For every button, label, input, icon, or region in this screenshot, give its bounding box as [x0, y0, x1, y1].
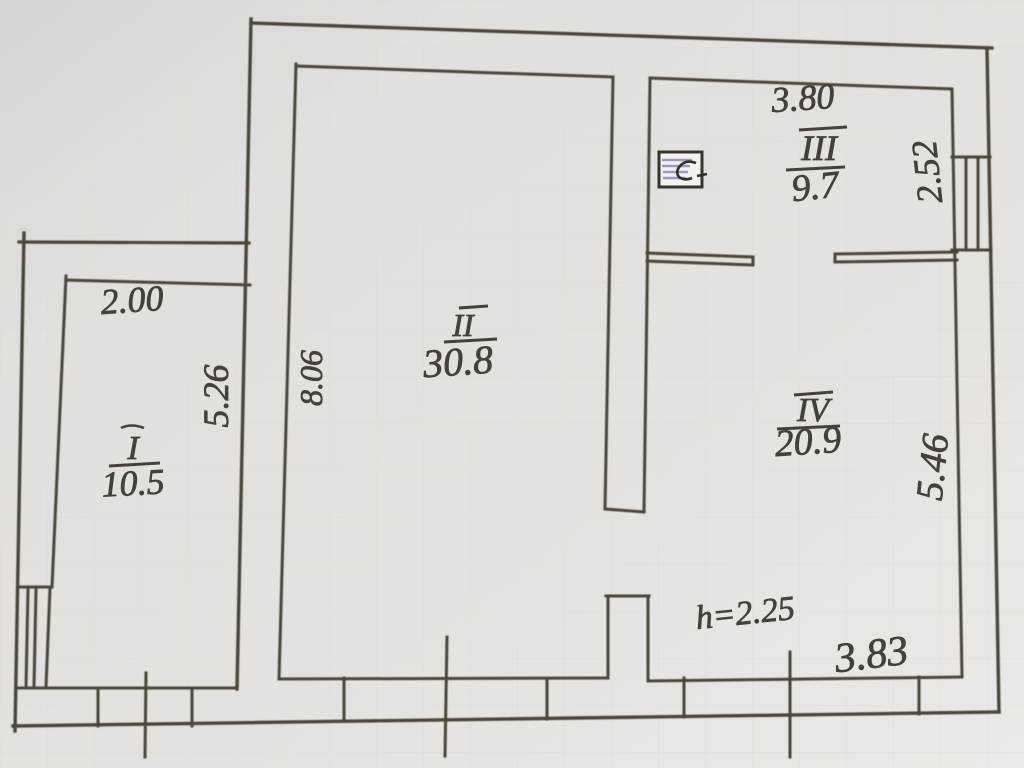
svg-text:III: III: [800, 128, 839, 168]
svg-text:10.5: 10.5: [100, 461, 165, 504]
svg-text:5.26: 5.26: [196, 365, 236, 428]
svg-text:3.80: 3.80: [769, 76, 836, 120]
svg-text:30.8: 30.8: [420, 337, 494, 387]
svg-text:9.7: 9.7: [789, 163, 843, 210]
svg-text:2.00: 2.00: [99, 278, 165, 322]
svg-text:I: I: [126, 430, 140, 467]
svg-text:2.52: 2.52: [904, 139, 950, 206]
svg-text:8.06: 8.06: [293, 350, 329, 406]
svg-text:5.46: 5.46: [909, 432, 958, 503]
svg-text:20.9: 20.9: [773, 419, 842, 466]
svg-text:3.83: 3.83: [831, 628, 911, 683]
